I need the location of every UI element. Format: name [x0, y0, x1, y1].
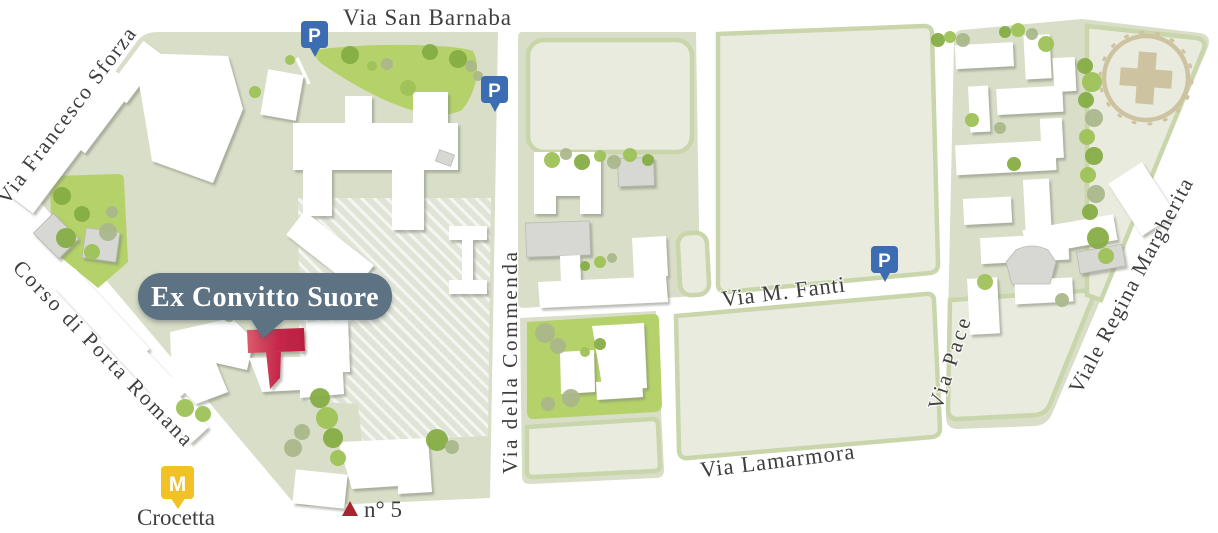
metro-station-label: Crocetta	[137, 505, 215, 530]
poi-label: Ex Convitto Suore	[151, 281, 379, 313]
field	[677, 232, 709, 295]
metro-letter: M	[169, 473, 187, 496]
building	[338, 438, 432, 494]
house-number-label: n° 5	[364, 497, 402, 522]
parking-letter: P	[878, 251, 891, 272]
parking-letter: P	[308, 26, 321, 47]
map-canvas: Via San Barnaba Via Francesco Sforza Cor…	[0, 0, 1218, 533]
building-gray	[525, 221, 590, 257]
block-fanti-north	[718, 26, 938, 292]
map-stage: Via San Barnaba Via Francesco Sforza Cor…	[0, 0, 1218, 533]
building	[592, 323, 647, 400]
street-label-commenda: Via della Commenda	[498, 252, 522, 474]
building	[963, 196, 1012, 224]
metro-marker[interactable]: M	[161, 466, 194, 509]
building	[1040, 118, 1064, 159]
block-lamarmora	[676, 294, 940, 458]
building	[292, 469, 347, 508]
street-label-san-barnaba: Via San Barnaba	[343, 5, 511, 30]
building	[560, 350, 595, 394]
parking-letter: P	[488, 81, 501, 102]
building	[996, 86, 1063, 115]
field	[527, 419, 660, 477]
building	[1053, 57, 1077, 92]
field	[528, 40, 692, 152]
